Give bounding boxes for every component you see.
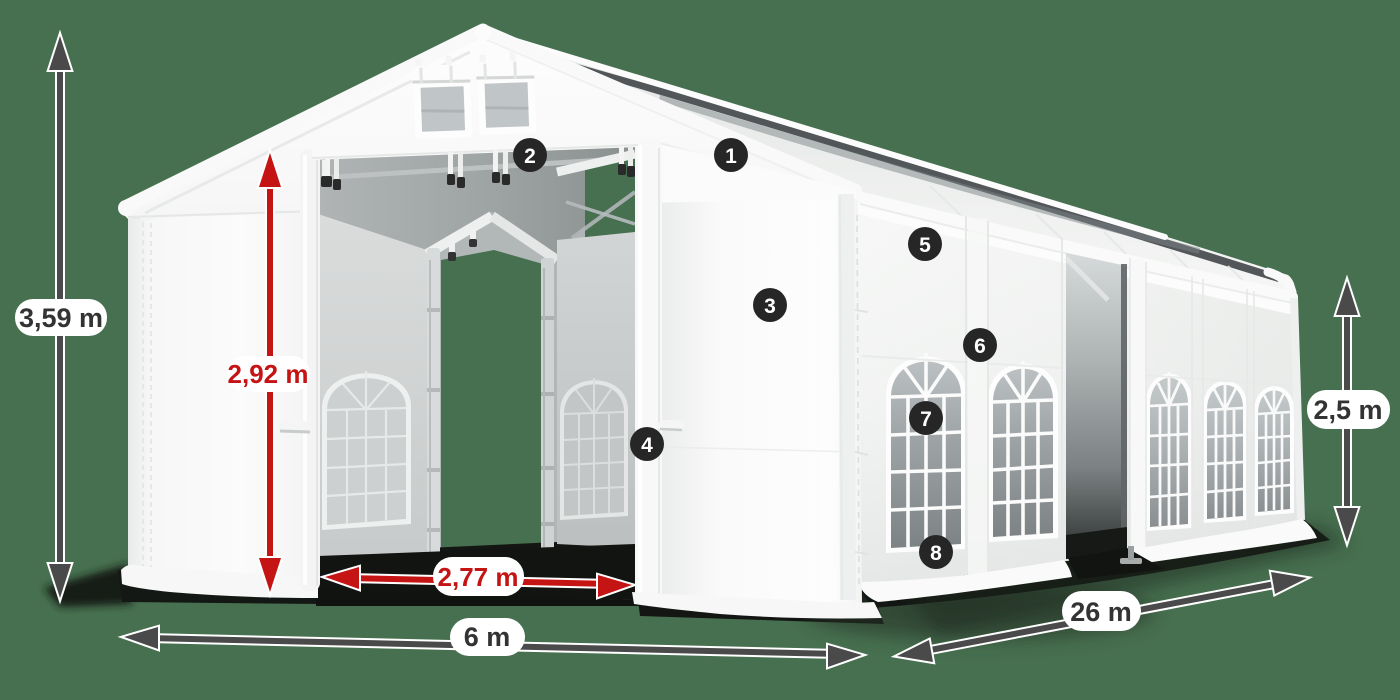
svg-text:6 m: 6 m bbox=[464, 622, 511, 652]
svg-text:26 m: 26 m bbox=[1070, 597, 1132, 627]
svg-text:4: 4 bbox=[641, 434, 653, 457]
svg-text:3: 3 bbox=[764, 295, 776, 318]
svg-text:5: 5 bbox=[919, 234, 931, 257]
svg-text:2: 2 bbox=[524, 145, 536, 168]
svg-text:2,5 m: 2,5 m bbox=[1313, 395, 1382, 425]
svg-text:8: 8 bbox=[930, 542, 942, 565]
svg-text:7: 7 bbox=[920, 408, 932, 431]
svg-text:3,59 m: 3,59 m bbox=[19, 303, 103, 333]
svg-text:2,92 m: 2,92 m bbox=[228, 359, 309, 389]
svg-text:2,77 m: 2,77 m bbox=[438, 562, 519, 592]
svg-text:6: 6 bbox=[974, 335, 986, 358]
svg-text:1: 1 bbox=[725, 145, 737, 168]
